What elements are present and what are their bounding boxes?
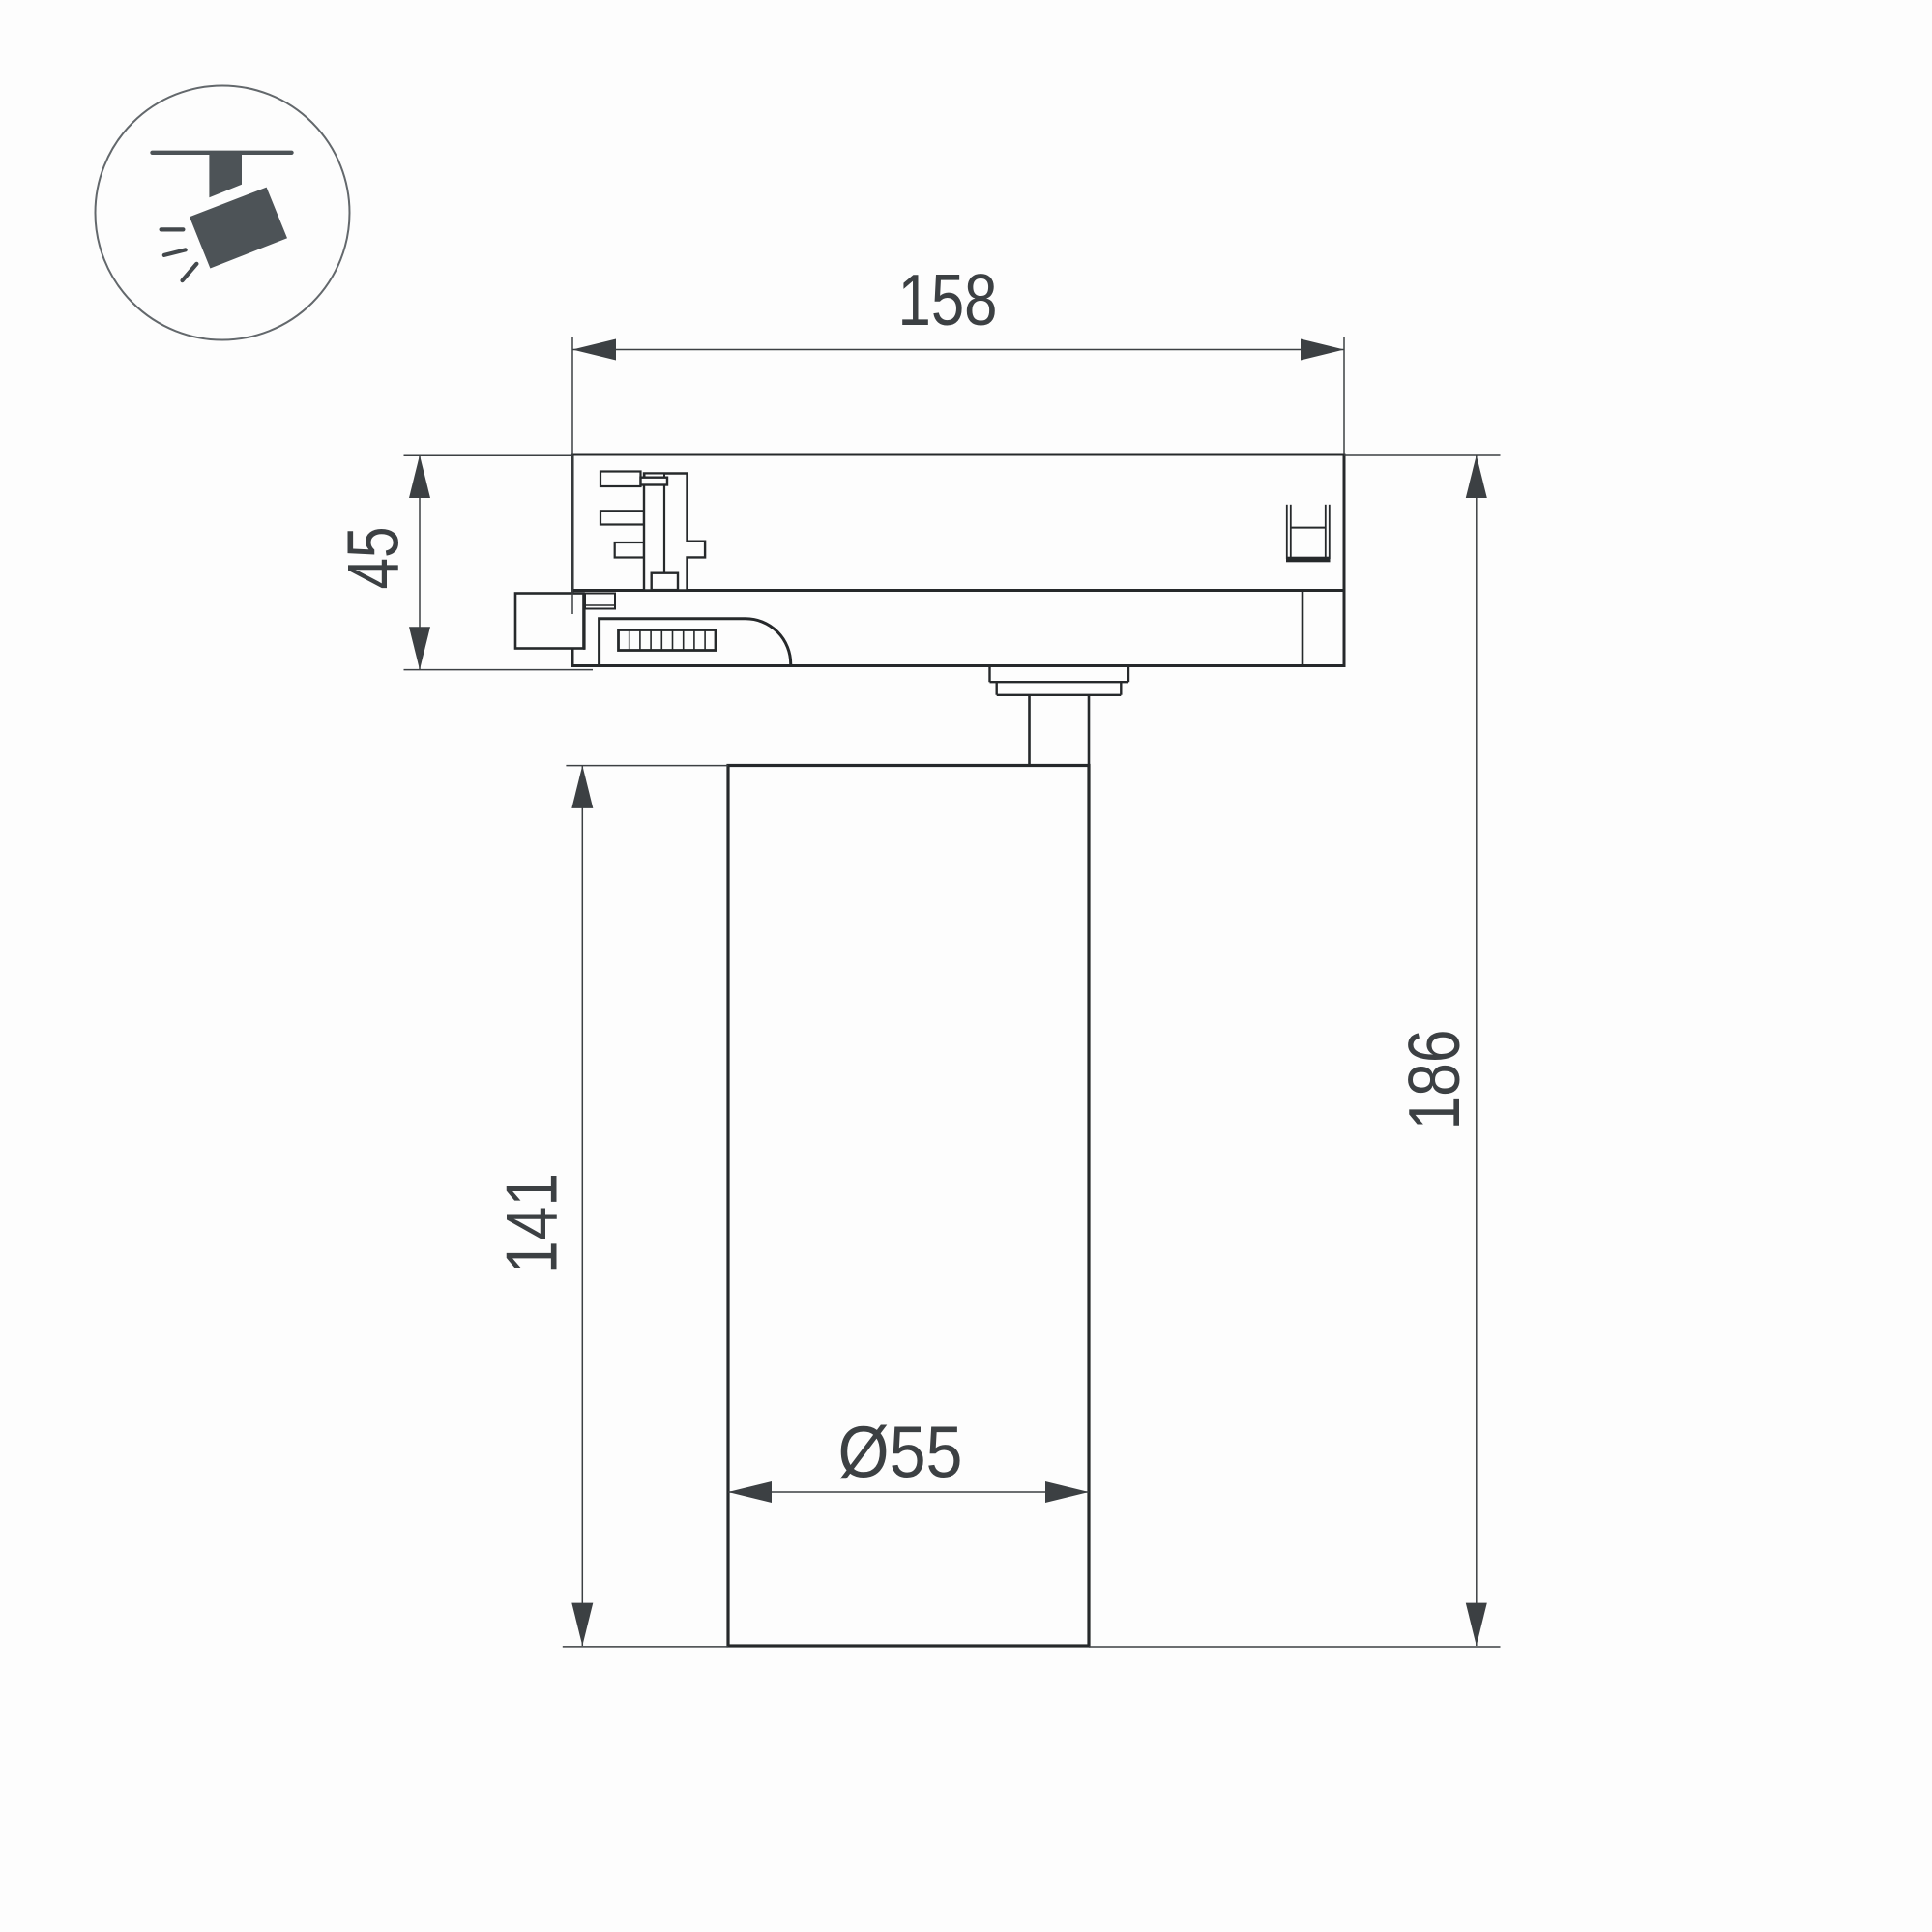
svg-text:186: 186 <box>1393 1030 1475 1130</box>
svg-text:158: 158 <box>898 259 998 340</box>
svg-text:45: 45 <box>333 527 414 590</box>
svg-text:Ø55: Ø55 <box>838 1412 963 1493</box>
svg-text:141: 141 <box>491 1173 572 1273</box>
